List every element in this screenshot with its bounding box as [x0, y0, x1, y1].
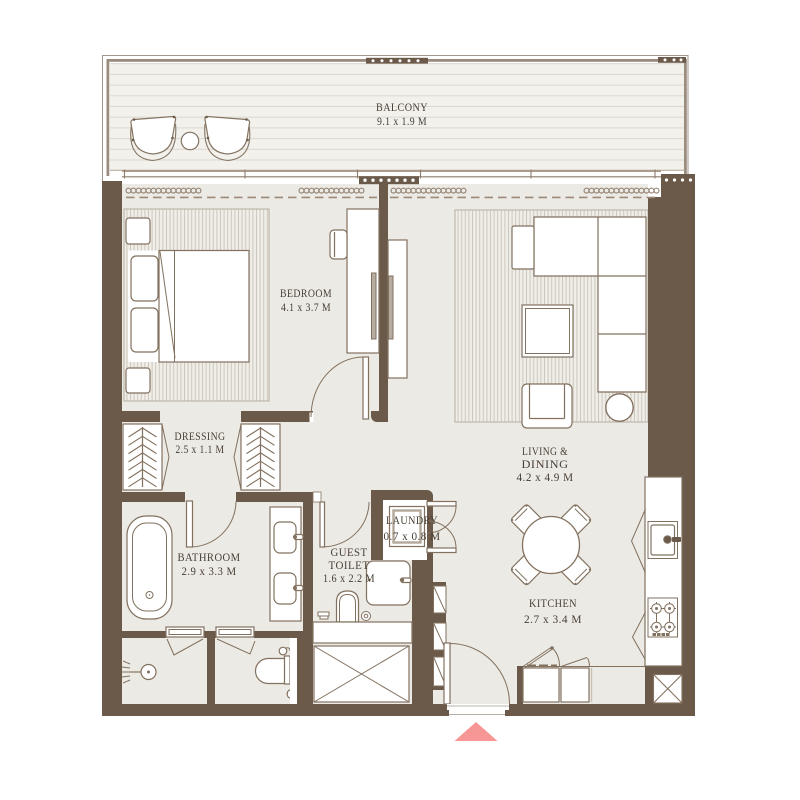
svg-text:KITCHEN: KITCHEN	[529, 596, 577, 610]
svg-text:2.9 x 3.3 M: 2.9 x 3.3 M	[182, 564, 237, 578]
svg-text:LIVING &: LIVING &	[522, 444, 568, 458]
svg-text:BEDROOM: BEDROOM	[280, 286, 332, 300]
svg-text:BALCONY: BALCONY	[376, 100, 428, 114]
svg-text:LAUNDRY: LAUNDRY	[386, 513, 438, 527]
svg-text:4.2 x 4.9 M: 4.2 x 4.9 M	[517, 470, 574, 484]
svg-text:TOILET: TOILET	[329, 558, 370, 572]
svg-text:DINING: DINING	[522, 457, 569, 471]
svg-text:BATHROOM: BATHROOM	[178, 550, 241, 564]
svg-text:GUEST: GUEST	[331, 545, 368, 559]
svg-text:1.6 x 2.2 M: 1.6 x 2.2 M	[323, 571, 375, 585]
svg-text:4.1 x 3.7 M: 4.1 x 3.7 M	[281, 300, 331, 314]
svg-text:0.7 x 0.8 M: 0.7 x 0.8 M	[384, 529, 441, 543]
svg-text:9.1 x 1.9 M: 9.1 x 1.9 M	[377, 114, 427, 128]
svg-text:2.7 x 3.4 M: 2.7 x 3.4 M	[524, 612, 582, 626]
svg-text:DRESSING: DRESSING	[175, 429, 226, 443]
svg-text:2.5 x 1.1 M: 2.5 x 1.1 M	[176, 442, 225, 456]
